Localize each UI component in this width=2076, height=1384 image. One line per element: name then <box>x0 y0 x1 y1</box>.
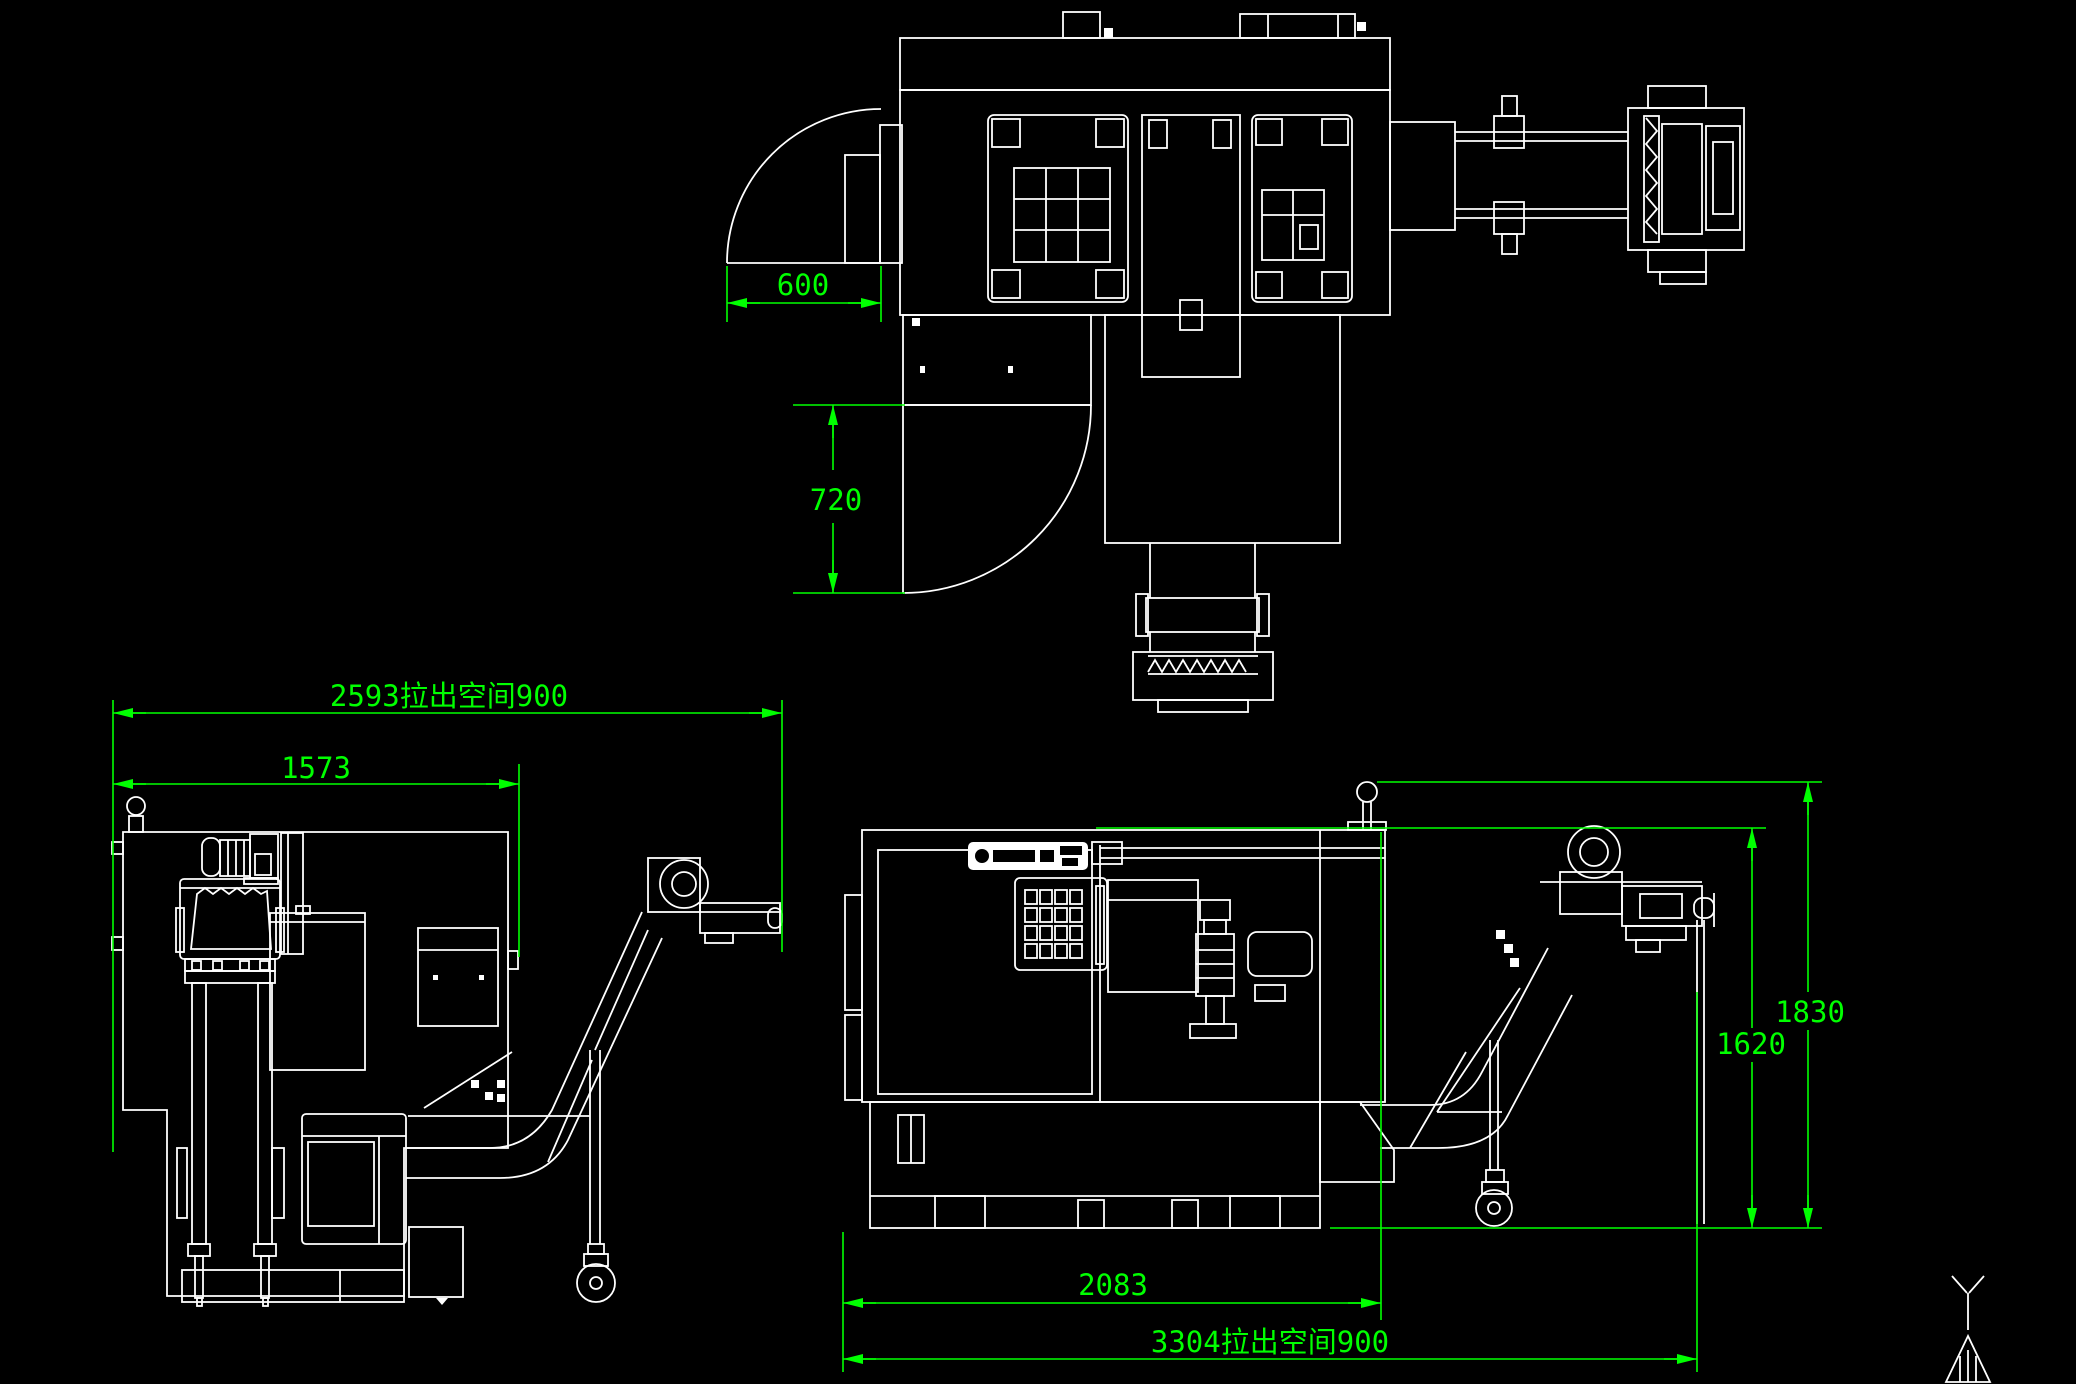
dim-1830-label: 1830 <box>1775 995 1845 1029</box>
dim-600-label: 600 <box>777 268 829 302</box>
front-caster-wheel <box>1476 1190 1512 1226</box>
rear-eyebolt <box>127 797 145 832</box>
conveyor-hatch <box>1148 660 1246 672</box>
front-eyebolt <box>1348 782 1386 830</box>
front-conveyor-motor <box>1568 826 1620 878</box>
rear-view <box>112 797 782 1306</box>
rear-chuck <box>176 879 284 959</box>
drawing-sheet[interactable]: 600 720 2593拉出空间900 1573 1620 1830 2083 <box>0 0 2076 1384</box>
dimensions: 600 720 2593拉出空间900 1573 1620 1830 2083 <box>113 266 1845 1372</box>
y-axis-datum-icon <box>1946 1276 1990 1382</box>
dim-3304-label: 3304拉出空间900 <box>1151 1325 1389 1359</box>
door-arc-720 <box>903 405 1091 593</box>
dim-2083-label: 2083 <box>1078 1268 1148 1302</box>
dim-2593-label: 2593拉出空间900 <box>330 679 568 713</box>
plan-lower-door-swing <box>903 405 1091 593</box>
brand-label-plate <box>968 842 1122 870</box>
dim-1620-label: 1620 <box>1716 1027 1786 1061</box>
rear-caster-wheel <box>577 1264 615 1302</box>
plan-upper-door-swing <box>727 109 902 263</box>
front-base <box>870 1102 1394 1228</box>
plan-view <box>727 12 1744 712</box>
door-arc-600 <box>727 109 881 263</box>
front-conveyor <box>1360 826 1714 1226</box>
front-body-outline <box>862 830 1385 1102</box>
plan-down-conveyor <box>1133 543 1273 712</box>
control-keypad[interactable] <box>1015 878 1107 970</box>
front-view <box>845 782 1714 1228</box>
roller-hatch <box>1646 118 1657 234</box>
plan-right-conveyor <box>1390 86 1744 284</box>
cad-canvas[interactable]: 600 720 2593拉出空间900 1573 1620 1830 2083 <box>0 0 2076 1384</box>
rear-gearmotor <box>202 834 278 884</box>
plan-top-bolt <box>1104 28 1113 38</box>
front-turret-stack <box>1190 900 1236 1038</box>
dim-1573-label: 1573 <box>281 751 351 785</box>
dim-720-label: 720 <box>810 483 862 517</box>
rear-legs-feet <box>177 983 284 1306</box>
